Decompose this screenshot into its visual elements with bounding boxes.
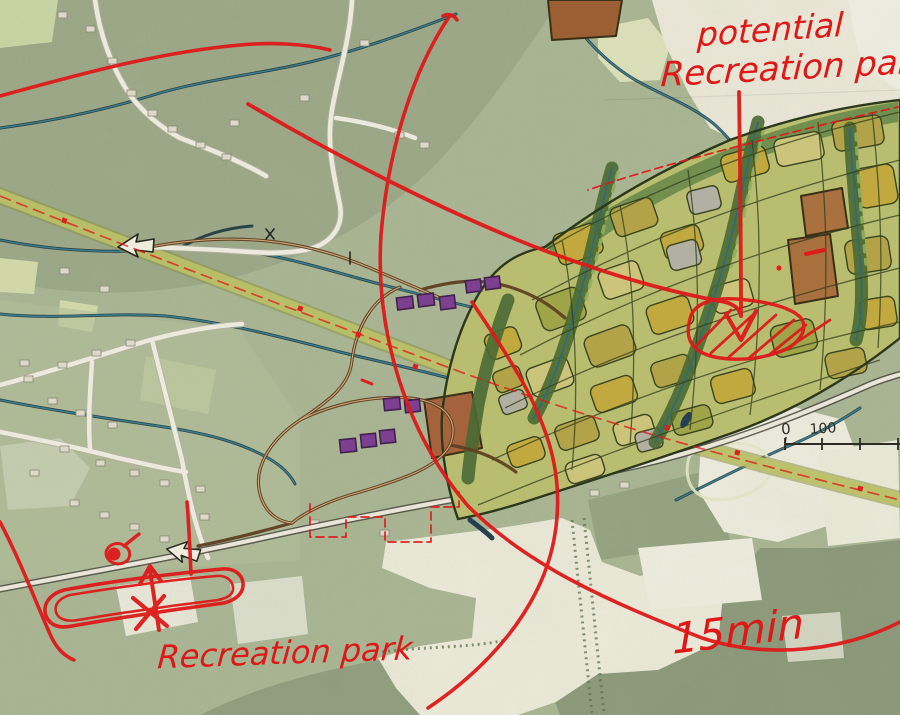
map-canvas[interactable]: 0 100 [0, 0, 900, 715]
scale-zero-label: 0 [781, 420, 792, 439]
site-plan-sketch: 0 100 [0, 0, 900, 715]
scale-hundred-label: 100 [809, 420, 837, 437]
